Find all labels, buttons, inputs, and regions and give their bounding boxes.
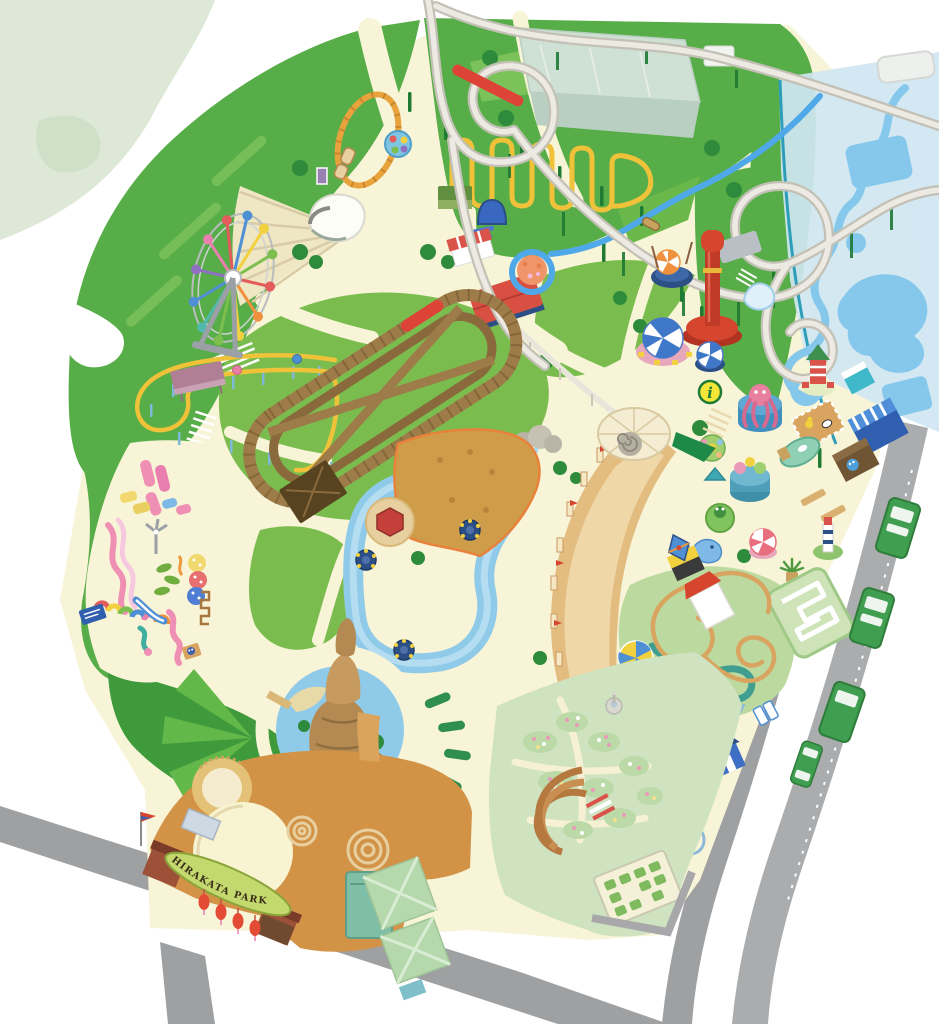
map-canvas: i [0,0,939,1024]
ride-car-pink [233,366,242,375]
balloon-ride[interactable] [730,457,770,502]
dome-pavilion[interactable] [310,195,365,242]
teacup-ride[interactable] [385,131,411,157]
tree-spinner [517,255,547,285]
canopy-ride-small[interactable] [695,342,725,372]
speckled-eggs [187,554,207,605]
raft [356,549,376,570]
ammonite [618,432,642,456]
gem-pavilion [366,498,414,546]
info-marker-rides[interactable]: i [699,381,721,403]
frog-hopper[interactable] [706,504,734,532]
raft [460,519,480,540]
raft [394,639,414,660]
info-icon: i [707,384,713,402]
kiddie-station [317,168,327,184]
pool-round [846,233,866,253]
parasol-ride[interactable] [749,529,777,559]
ride-car-blue [293,355,302,364]
park-map: i [0,0,939,1024]
